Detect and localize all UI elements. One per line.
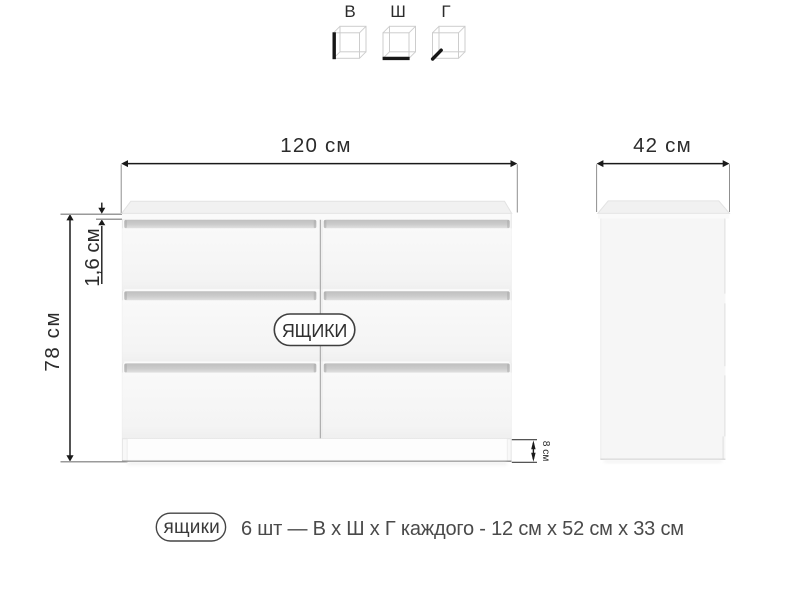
svg-text:ящики: ящики: [163, 517, 219, 538]
svg-text:В: В: [344, 2, 355, 21]
svg-text:ЯЩИКИ: ЯЩИКИ: [282, 321, 347, 341]
svg-text:Г: Г: [441, 2, 450, 21]
svg-text:Ш: Ш: [390, 2, 406, 21]
svg-text:42 см: 42 см: [633, 134, 692, 157]
svg-text:1,6 см: 1,6 см: [81, 228, 104, 287]
svg-text:6 шт — В х Ш х Г каждого - 12: 6 шт — В х Ш х Г каждого - 12 см х 52 см…: [241, 518, 684, 540]
svg-text:120 см: 120 см: [280, 134, 351, 157]
svg-text:78 см: 78 см: [41, 311, 64, 372]
svg-text:8 см: 8 см: [540, 441, 551, 462]
